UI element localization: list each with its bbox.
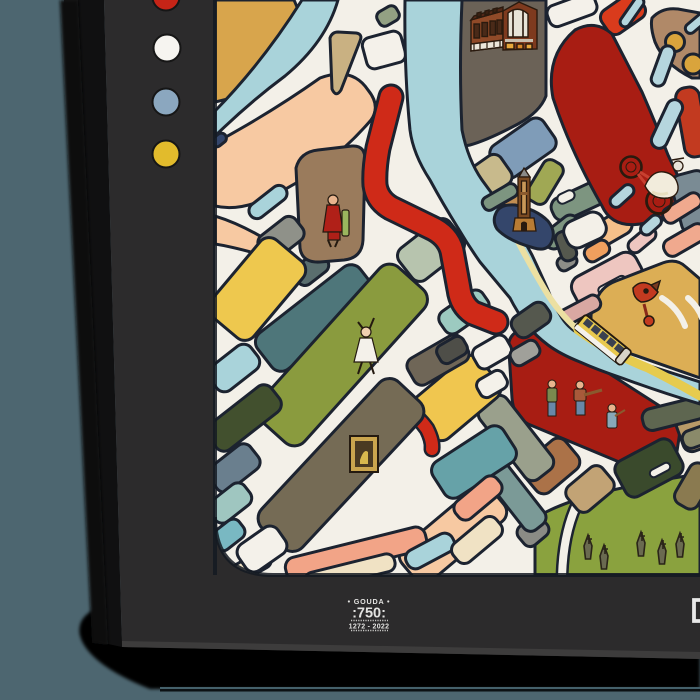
svg-text::750:: :750: [352,606,386,622]
svg-text:1272 - 2022: 1272 - 2022 [349,624,390,631]
